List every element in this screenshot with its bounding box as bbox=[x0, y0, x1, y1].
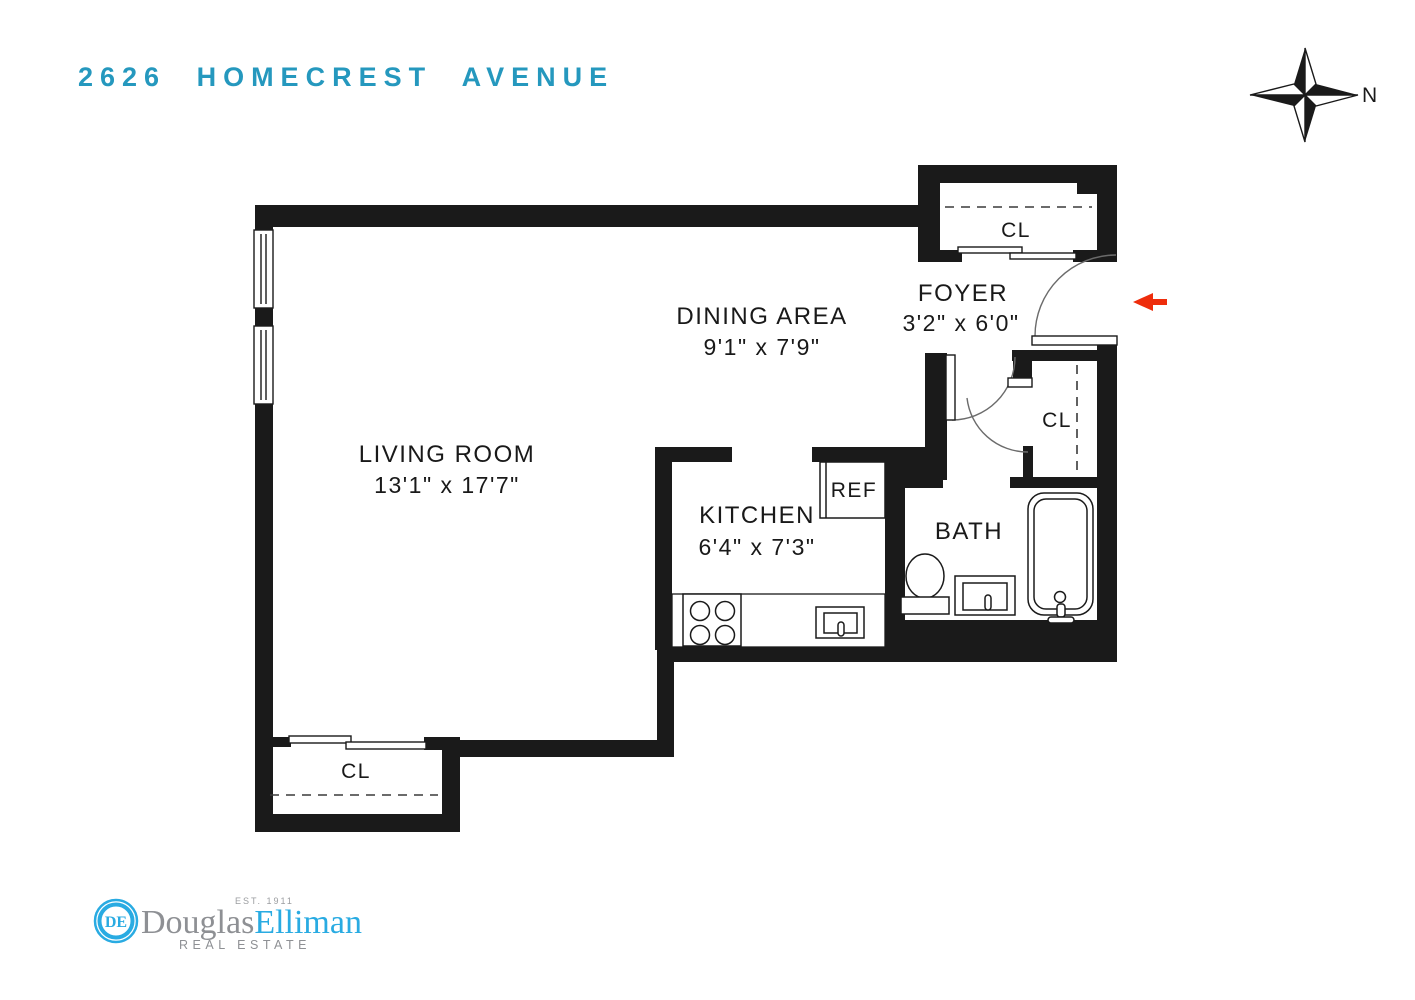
kitchen-sink-icon bbox=[816, 607, 864, 638]
living-room-dims: 13'1" x 17'7" bbox=[374, 472, 520, 498]
logo-douglas: Douglas bbox=[141, 904, 254, 941]
bath-label: BATH bbox=[935, 518, 1003, 545]
sliding-door-top-closet-a bbox=[958, 247, 1022, 253]
logo-est-1911: EST. 1911 bbox=[235, 896, 294, 906]
logo-real-estate: REAL ESTATE bbox=[179, 938, 311, 952]
closet-living-label: CL bbox=[341, 760, 371, 783]
sliding-door-living-closet-a bbox=[289, 736, 351, 743]
closet-foyer-top-label: CL bbox=[1001, 219, 1031, 242]
entry-door-arc bbox=[1035, 255, 1116, 336]
bath-door-arc bbox=[952, 357, 1015, 420]
window-left-1 bbox=[254, 230, 273, 308]
entry-door-leaf bbox=[1032, 336, 1117, 345]
footer: DE DouglasElliman EST. 1911 REAL ESTATE … bbox=[93, 894, 325, 952]
floorplan-drawing: N LIVING ROOM 13'1" x 17'7" DINING AREA … bbox=[0, 0, 1415, 1000]
closet-hall-label: CL bbox=[1042, 409, 1072, 432]
douglas-elliman-monogram-icon: DE bbox=[93, 898, 139, 944]
sliding-door-top-closet-b bbox=[1010, 253, 1076, 259]
bath-door-leaf bbox=[946, 355, 955, 420]
living-room-label: LIVING ROOM bbox=[359, 441, 536, 468]
foyer-label: FOYER bbox=[918, 280, 1008, 307]
window-left-2 bbox=[254, 326, 273, 404]
douglas-elliman-logo: DE DouglasElliman EST. 1911 REAL ESTATE bbox=[93, 894, 325, 952]
foyer-dims: 3'2" x 6'0" bbox=[902, 310, 1019, 336]
stove-icon bbox=[683, 594, 741, 646]
bathtub-icon bbox=[1028, 493, 1093, 623]
refrigerator-label: REF bbox=[831, 479, 878, 502]
closet-door-arc bbox=[967, 398, 1028, 452]
entry-arrow-icon bbox=[1133, 293, 1167, 311]
compass-rose-icon bbox=[1250, 48, 1358, 142]
kitchen-dims: 6'4" x 7'3" bbox=[698, 534, 815, 560]
closet-door-leaf bbox=[1008, 378, 1032, 387]
sliding-door-living-closet-b bbox=[346, 742, 426, 749]
dining-area-dims: 9'1" x 7'9" bbox=[703, 334, 820, 360]
kitchen-label: KITCHEN bbox=[699, 502, 815, 529]
compass-north-label: N bbox=[1362, 84, 1377, 107]
toilet-icon bbox=[901, 554, 949, 614]
walls bbox=[255, 165, 1117, 832]
floorplan-page: 2626 HOMECREST AVENUE bbox=[0, 0, 1415, 1000]
dining-area-label: DINING AREA bbox=[676, 303, 847, 330]
logo-elliman: Elliman bbox=[254, 904, 362, 941]
svg-text:DE: DE bbox=[105, 914, 127, 931]
bathroom-sink-icon bbox=[955, 576, 1015, 615]
